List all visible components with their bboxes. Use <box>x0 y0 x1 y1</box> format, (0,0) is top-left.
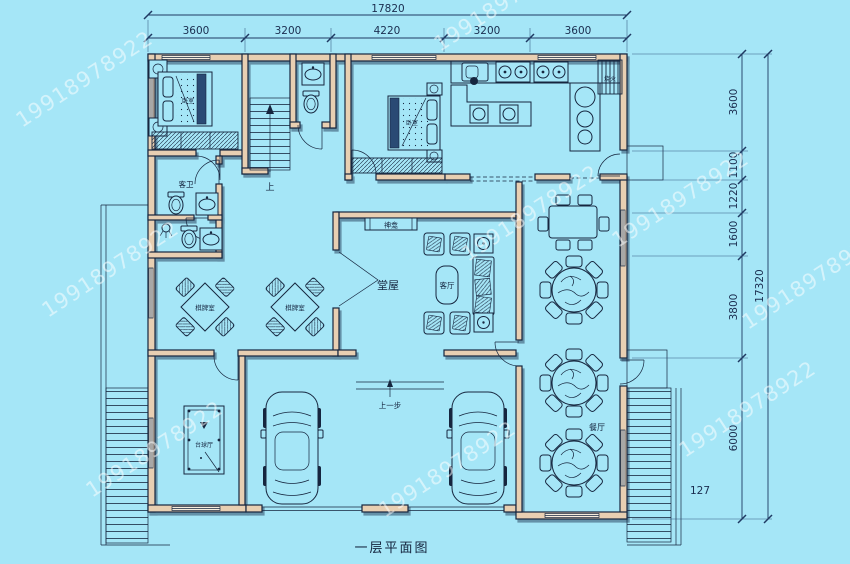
stairs-up-label: 上 <box>265 182 274 193</box>
bedroom1-label: 卧室 <box>182 97 194 105</box>
entry-step-label: 上一步 <box>379 401 402 410</box>
shrine-label: 神龛 <box>384 221 398 230</box>
dim-right-4: 1600 <box>728 221 740 248</box>
dim-right-1: 3600 <box>728 89 740 116</box>
dining-label: 餐厅 <box>589 423 605 432</box>
interior-staircase <box>250 98 290 172</box>
main-hall-label: 堂屋 <box>377 279 399 292</box>
dim-right-3: 1220 <box>728 183 740 210</box>
bedroom2-label: 卧室 <box>406 119 418 127</box>
dim-top-total: 17820 <box>371 3 404 15</box>
rect-dining-table <box>549 206 597 238</box>
card-room2-label: 棋牌室 <box>285 303 305 312</box>
car-left <box>261 392 323 504</box>
dim-top-5: 3600 <box>565 25 592 37</box>
card-room1-label: 棋牌室 <box>195 303 215 312</box>
dim-top-1: 3600 <box>183 25 210 37</box>
floor-plan-canvas: 卧室 卧室 客卫 神龛 堂屋 客厅 棋牌室 棋牌室 餐厅 台球厅 烧火 上 上一… <box>0 0 850 564</box>
bedroom2-wardrobe <box>352 158 442 173</box>
plan-title: 一层平面图 <box>354 541 429 556</box>
elevation-note: 127 <box>690 485 710 497</box>
bedroom1-wardrobe <box>152 132 238 149</box>
floor-plan-page: 卧室 卧室 客卫 神龛 堂屋 客厅 棋牌室 棋牌室 餐厅 台球厅 烧火 上 上一… <box>0 0 850 564</box>
round-table-2 <box>540 349 608 417</box>
living-room-label: 客厅 <box>440 280 455 290</box>
dim-top-3: 4220 <box>374 25 401 37</box>
billiards-label: 台球厅 <box>195 441 213 449</box>
dim-top-2: 3200 <box>275 25 302 37</box>
round-table-1 <box>540 256 608 324</box>
guest-bath-label: 客卫 <box>179 179 194 189</box>
stove-label: 烧火 <box>604 75 616 83</box>
round-table-3 <box>540 429 608 497</box>
